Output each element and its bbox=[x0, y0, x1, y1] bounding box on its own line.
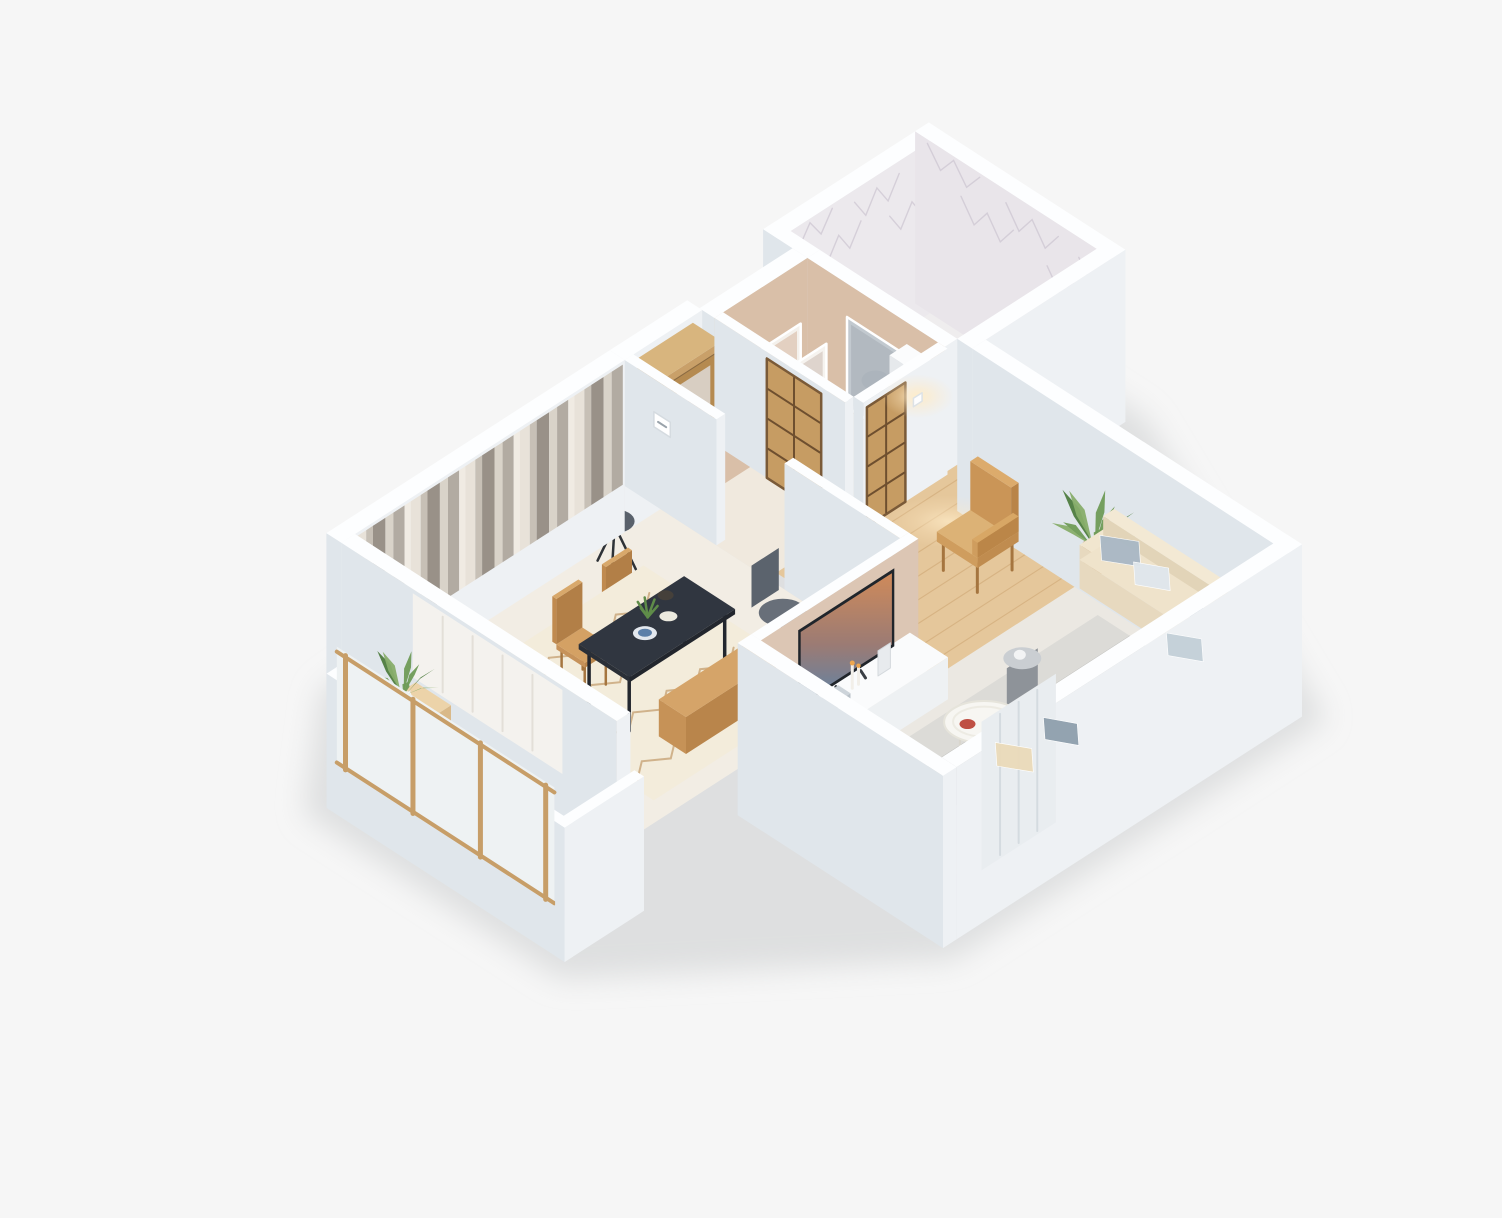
apartment-floorplan-render: 3D isometric dollhouse render of a one-b… bbox=[0, 0, 1502, 1218]
apartment-floorplan-svg bbox=[0, 0, 1502, 1218]
